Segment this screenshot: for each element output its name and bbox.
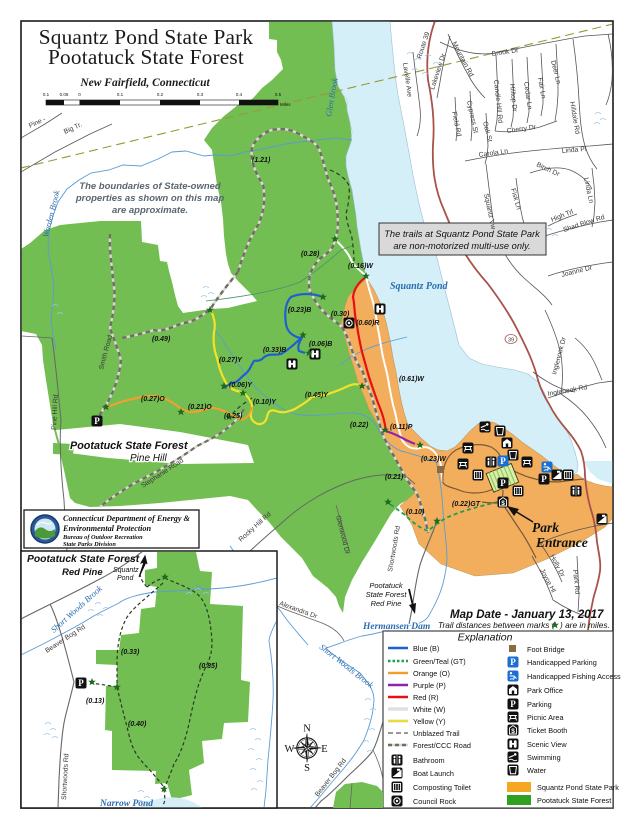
- svg-text:Entrance: Entrance: [535, 535, 588, 550]
- svg-text:Bathroom: Bathroom: [413, 756, 445, 765]
- svg-text:Swimming: Swimming: [527, 753, 561, 762]
- svg-text:(0.23)W: (0.23)W: [421, 456, 447, 463]
- svg-text:Red Pine: Red Pine: [62, 567, 103, 578]
- svg-text:Yellow (Y): Yellow (Y): [413, 717, 446, 726]
- svg-text:(0.49): (0.49): [152, 336, 171, 343]
- svg-text:0.3: 0.3: [197, 92, 204, 97]
- svg-text:(0.06)B: (0.06)B: [309, 341, 332, 348]
- svg-text:(0.10): (0.10): [406, 509, 425, 516]
- svg-text:Connecticut Department of Ener: Connecticut Department of Energy &: [63, 514, 191, 523]
- svg-text:(0.45)Y: (0.45)Y: [305, 392, 329, 399]
- svg-text:Red (R): Red (R): [413, 693, 439, 702]
- svg-text:New Fairfield, Connecticut: New Fairfield, Connecticut: [79, 77, 210, 89]
- svg-text:Pine Hill: Pine Hill: [130, 453, 167, 464]
- svg-text:are non-motorized multi-use on: are non-motorized multi-use only.: [393, 241, 530, 251]
- svg-text:Unblazed Trail: Unblazed Trail: [413, 729, 460, 738]
- svg-text:Orange (O): Orange (O): [413, 669, 450, 678]
- svg-text:Blue (B): Blue (B): [413, 644, 439, 653]
- svg-text:Water: Water: [527, 766, 547, 775]
- svg-text:(1.21): (1.21): [252, 157, 271, 164]
- svg-text:(0.33): (0.33): [121, 649, 140, 656]
- svg-text:(0.10)Y: (0.10)Y: [253, 399, 277, 406]
- svg-text:White (W): White (W): [413, 705, 445, 714]
- svg-text:Explanation: Explanation: [458, 632, 513, 644]
- svg-text:(0.27)O: (0.27)O: [141, 396, 165, 403]
- svg-text:0.1: 0.1: [43, 92, 50, 97]
- svg-text:0.2: 0.2: [157, 92, 164, 97]
- svg-text:Forest/CCC Road: Forest/CCC Road: [413, 741, 471, 750]
- svg-text:0.1: 0.1: [117, 92, 124, 97]
- svg-text:The trails at Squantz Pond Sta: The trails at Squantz Pond State Park: [384, 229, 541, 239]
- svg-text:(0.85): (0.85): [199, 663, 218, 670]
- svg-text:(0.22): (0.22): [350, 422, 369, 429]
- svg-text:Pootatuck State Forest: Pootatuck State Forest: [537, 796, 611, 805]
- svg-text:Scenic View: Scenic View: [527, 740, 567, 749]
- svg-text:Squantz Pond State Park: Squantz Pond State Park: [537, 783, 619, 792]
- svg-text:W: W: [285, 744, 295, 755]
- svg-text:S: S: [304, 763, 310, 774]
- svg-text:(0.27)Y: (0.27)Y: [219, 357, 243, 364]
- svg-text:Foot Bridge: Foot Bridge: [527, 645, 565, 654]
- svg-text:Park: Park: [532, 520, 559, 535]
- svg-text:Miles: Miles: [280, 102, 291, 107]
- svg-text:Handicapped Fishing Access: Handicapped Fishing Access: [527, 672, 621, 681]
- svg-text:(0.21)O: (0.21)O: [188, 404, 212, 411]
- svg-text:(0.22)GT: (0.22)GT: [452, 501, 481, 508]
- svg-text:The boundaries of State-owned: The boundaries of State-owned: [79, 181, 221, 192]
- svg-text:0.05: 0.05: [60, 92, 69, 97]
- svg-text:Handicapped Parking: Handicapped Parking: [527, 658, 597, 667]
- svg-text:N: N: [303, 724, 311, 735]
- svg-text:(0.23)B: (0.23)B: [288, 307, 311, 314]
- svg-text:Ticket Booth: Ticket Booth: [527, 726, 567, 735]
- svg-text:Pond: Pond: [117, 575, 134, 582]
- svg-text:(0.30): (0.30): [331, 311, 350, 318]
- svg-text:(0.16)W: (0.16)W: [348, 263, 374, 270]
- svg-text:(0.11)P: (0.11)P: [390, 424, 413, 431]
- svg-text:(0.25): (0.25): [224, 413, 243, 420]
- svg-text:(0.13): (0.13): [86, 698, 105, 705]
- svg-text:Boat Launch: Boat Launch: [413, 769, 454, 778]
- svg-text:Pootatuck State Forest: Pootatuck State Forest: [27, 554, 140, 565]
- svg-text:0.5: 0.5: [275, 92, 282, 97]
- svg-text:Pootatuck State Forest: Pootatuck State Forest: [70, 440, 188, 452]
- svg-text:(0.21): (0.21): [385, 474, 404, 481]
- svg-text:(0.33)B: (0.33)B: [263, 347, 286, 354]
- svg-text:Purple (P): Purple (P): [413, 681, 446, 690]
- svg-text:Parking: Parking: [527, 700, 552, 709]
- svg-text:Picnic Area: Picnic Area: [527, 713, 564, 722]
- svg-text:are approximate.: are approximate.: [112, 205, 188, 216]
- svg-text:Green/Teal (GT): Green/Teal (GT): [413, 657, 466, 666]
- svg-text:Bureau of Outdoor Recreation: Bureau of Outdoor Recreation: [62, 534, 143, 541]
- svg-text:(0.61)W: (0.61)W: [399, 376, 425, 383]
- svg-text:Narrow Pond: Narrow Pond: [99, 799, 153, 809]
- svg-text:(0.06)Y: (0.06)Y: [229, 382, 253, 389]
- svg-text:Trail distances between marks: Trail distances between marks (: [438, 620, 556, 630]
- svg-text:Pootatuck: Pootatuck: [369, 581, 404, 590]
- svg-text:State Forest: State Forest: [366, 590, 408, 599]
- svg-text:0.4: 0.4: [236, 92, 243, 97]
- svg-text:properties as shown on this ma: properties as shown on this map: [75, 193, 225, 204]
- svg-text:Squantz Pond: Squantz Pond: [390, 281, 449, 292]
- svg-text:(0.28): (0.28): [301, 251, 320, 258]
- svg-text:Red Pine: Red Pine: [371, 599, 402, 608]
- svg-text:39: 39: [508, 338, 514, 344]
- svg-text:Squantz: Squantz: [113, 567, 139, 574]
- svg-text:E: E: [321, 744, 327, 755]
- svg-text:(0.60)R: (0.60)R: [356, 320, 379, 327]
- svg-text:Pootatuck State Forest: Pootatuck State Forest: [48, 45, 244, 69]
- svg-text:(0.40): (0.40): [128, 721, 147, 728]
- svg-text:Council Rock: Council Rock: [413, 797, 456, 806]
- svg-text:Park Office: Park Office: [527, 686, 563, 695]
- svg-text:Composting Toilet: Composting Toilet: [413, 783, 471, 792]
- svg-text:Environmental Protection: Environmental Protection: [62, 524, 151, 533]
- svg-text:State Parks Division: State Parks Division: [63, 541, 116, 548]
- svg-text:) are in miles.: ) are in miles.: [559, 620, 610, 630]
